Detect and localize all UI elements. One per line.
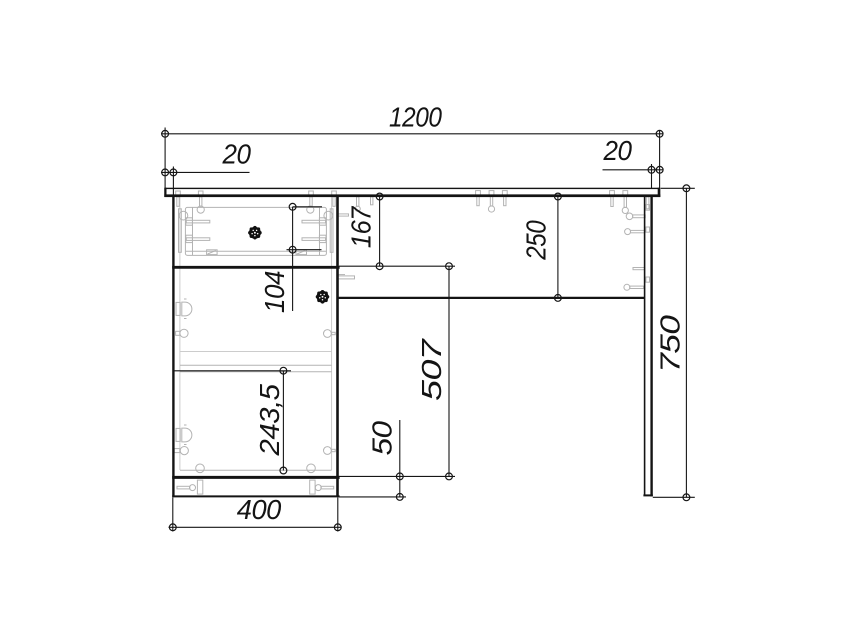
svg-text:1200: 1200 bbox=[389, 101, 442, 132]
svg-text:507: 507 bbox=[416, 337, 447, 401]
svg-text:20: 20 bbox=[603, 135, 633, 166]
svg-text:50: 50 bbox=[366, 420, 397, 455]
svg-text:104: 104 bbox=[259, 271, 290, 313]
svg-text:243,5: 243,5 bbox=[254, 384, 285, 457]
svg-text:20: 20 bbox=[222, 138, 252, 169]
svg-text:167: 167 bbox=[346, 205, 377, 248]
svg-text:250: 250 bbox=[521, 220, 552, 261]
svg-text:750: 750 bbox=[654, 315, 685, 373]
svg-text:400: 400 bbox=[237, 494, 282, 525]
